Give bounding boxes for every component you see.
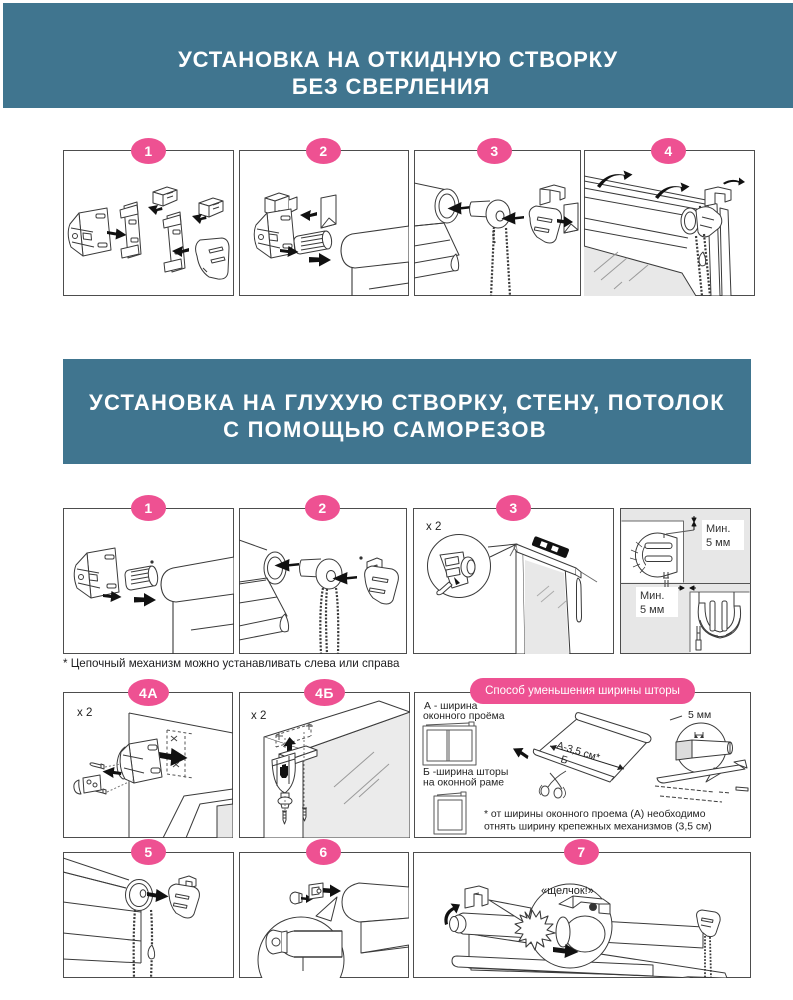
svg-text:x 2: x 2	[426, 521, 441, 533]
svg-text:отнять ширину крепежных механи: отнять ширину крепежных механизмов (3,5 …	[484, 822, 712, 833]
svg-text:Мин.: Мин.	[640, 590, 664, 602]
svg-text:5 мм: 5 мм	[706, 537, 730, 549]
svg-text:x 2: x 2	[251, 710, 266, 722]
svg-text:5 мм: 5 мм	[688, 709, 711, 721]
svg-text:Мин.: Мин.	[706, 523, 730, 535]
svg-text:на оконной раме: на оконной раме	[423, 778, 504, 789]
svg-text:5 мм: 5 мм	[640, 604, 664, 616]
svg-text:«щелчок!»: «щелчок!»	[541, 885, 594, 897]
svg-text:Б -ширина шторы: Б -ширина шторы	[423, 767, 508, 778]
svg-text:оконного проёма: оконного проёма	[423, 711, 505, 722]
svg-text:x 2: x 2	[77, 707, 92, 719]
svg-text:* от ширины оконного проема (А: * от ширины оконного проема (А) необходи…	[484, 808, 706, 820]
